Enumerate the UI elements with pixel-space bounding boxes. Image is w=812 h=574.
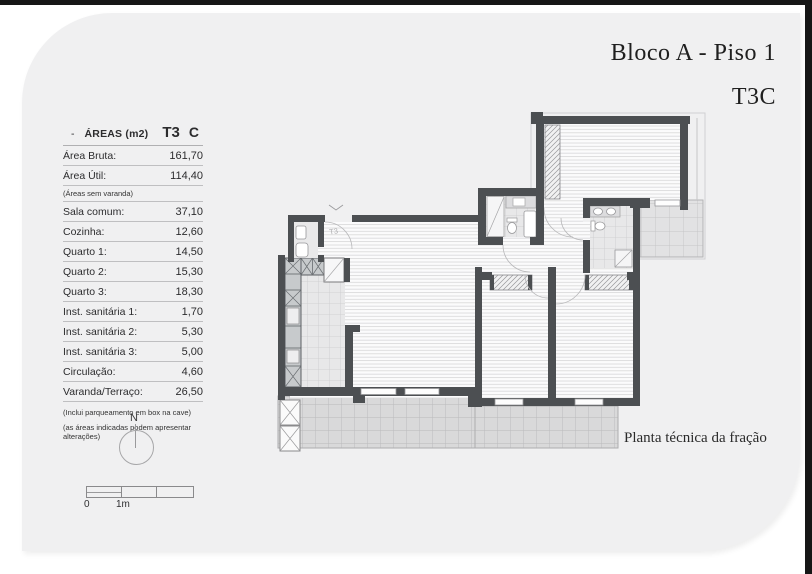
area-row-value: 114,40: [170, 170, 203, 182]
wc-entrance: [294, 222, 318, 258]
area-row-value: 5,30: [182, 326, 203, 338]
bathroom-2: [486, 196, 536, 237]
north-circle-icon: [119, 430, 154, 465]
area-row-label: Quarto 3:: [63, 286, 107, 298]
page-title: Bloco A - Piso 1: [611, 40, 776, 67]
wardrobe-icon: [585, 275, 633, 290]
area-row-value: 1,70: [182, 306, 203, 318]
area-row-label: Área Bruta:: [63, 150, 116, 162]
shaft-box-icon: [280, 400, 300, 425]
toilet-icon: [595, 222, 605, 230]
area-row: Inst. sanitária 3: 5,00: [63, 342, 203, 362]
area-row-label: Quarto 2:: [63, 266, 107, 278]
area-row-value: 12,60: [175, 226, 203, 238]
area-row-label: Circulação:: [63, 366, 116, 378]
area-row-label: Quarto 1:: [63, 246, 107, 258]
bathroom-3: [590, 206, 633, 268]
kitchen: [285, 258, 345, 387]
page: Bloco A - Piso 1 T3C - ÁREAS (m2) T3 C Á…: [0, 0, 812, 574]
entrance-marker-icon: [329, 205, 343, 210]
areas-table-header: - ÁREAS (m2) T3 C: [63, 124, 203, 146]
window-icon: [655, 200, 680, 206]
scale-segment: [87, 487, 122, 497]
scan-edge-top: [0, 0, 812, 5]
area-row: Quarto 3: 18,30: [63, 282, 203, 302]
kitchen-closet: [324, 258, 344, 282]
toilet-icon: [296, 243, 308, 257]
area-row-value: 18,30: [175, 286, 203, 298]
page-subtitle: T3C: [732, 84, 776, 111]
shaft-box-icon: [280, 426, 300, 451]
area-row: Quarto 2: 15,30: [63, 262, 203, 282]
area-row-label: Cozinha:: [63, 226, 104, 238]
wardrobe-icon: [545, 125, 560, 199]
areas-table: - ÁREAS (m2) T3 C Área Bruta: 161,70 Áre…: [63, 124, 203, 441]
area-row-label: Varanda/Terraço:: [63, 386, 143, 398]
area-row: Área Bruta: 161,70: [63, 146, 203, 166]
toilet-icon: [508, 223, 517, 234]
area-row: Área Útil: 114,40: [63, 166, 203, 186]
sink-icon: [594, 208, 603, 215]
scan-edge-right: [805, 0, 812, 574]
sink-icon: [296, 226, 306, 239]
floor-plan: T3: [263, 105, 713, 460]
entrance-label: T3: [329, 226, 339, 236]
window-icon: [575, 399, 603, 405]
scale-segment: [157, 487, 193, 497]
area-row-value: 14,50: [175, 246, 203, 258]
sink-icon: [607, 208, 616, 215]
area-row-label: Área Útil:: [63, 170, 106, 182]
north-label: N: [130, 412, 138, 424]
header-variant: C: [189, 124, 199, 140]
area-row: Inst. sanitária 2: 5,30: [63, 322, 203, 342]
area-row: Inst. sanitária 1: 1,70: [63, 302, 203, 322]
glass-door-icon: [405, 389, 439, 395]
table-note: (Áreas sem varanda): [63, 186, 203, 202]
area-row-value: 26,50: [175, 386, 203, 398]
window-icon: [495, 399, 523, 405]
area-row-label: Sala comum:: [63, 206, 124, 218]
header-dash: -: [71, 128, 75, 140]
bathtub-icon: [524, 211, 536, 237]
scale-bar: [86, 486, 194, 498]
area-row-value: 161,70: [169, 150, 203, 162]
area-row-value: 15,30: [175, 266, 203, 278]
bedroom3-floor: [544, 124, 680, 200]
area-row-label: Inst. sanitária 2:: [63, 326, 137, 338]
glass-door-icon: [361, 389, 396, 395]
area-row: Sala comum: 37,10: [63, 202, 203, 222]
area-row: Varanda/Terraço: 26,50: [63, 382, 203, 402]
scale-segment: [122, 487, 157, 497]
area-row-label: Inst. sanitária 1:: [63, 306, 137, 318]
area-row-value: 5,00: [182, 346, 203, 358]
area-row-value: 37,10: [175, 206, 203, 218]
area-row-label: Inst. sanitária 3:: [63, 346, 137, 358]
header-type: T3: [162, 124, 180, 141]
area-row: Cozinha: 12,60: [63, 222, 203, 242]
area-row: Circulação: 4,60: [63, 362, 203, 382]
area-row-value: 4,60: [182, 366, 203, 378]
wardrobe-icon: [490, 275, 532, 290]
scale-label-zero: 0: [84, 499, 90, 510]
scale-label-1m: 1m: [116, 499, 130, 510]
area-row: Quarto 1: 14,50: [63, 242, 203, 262]
header-title: ÁREAS (m2): [85, 128, 149, 140]
